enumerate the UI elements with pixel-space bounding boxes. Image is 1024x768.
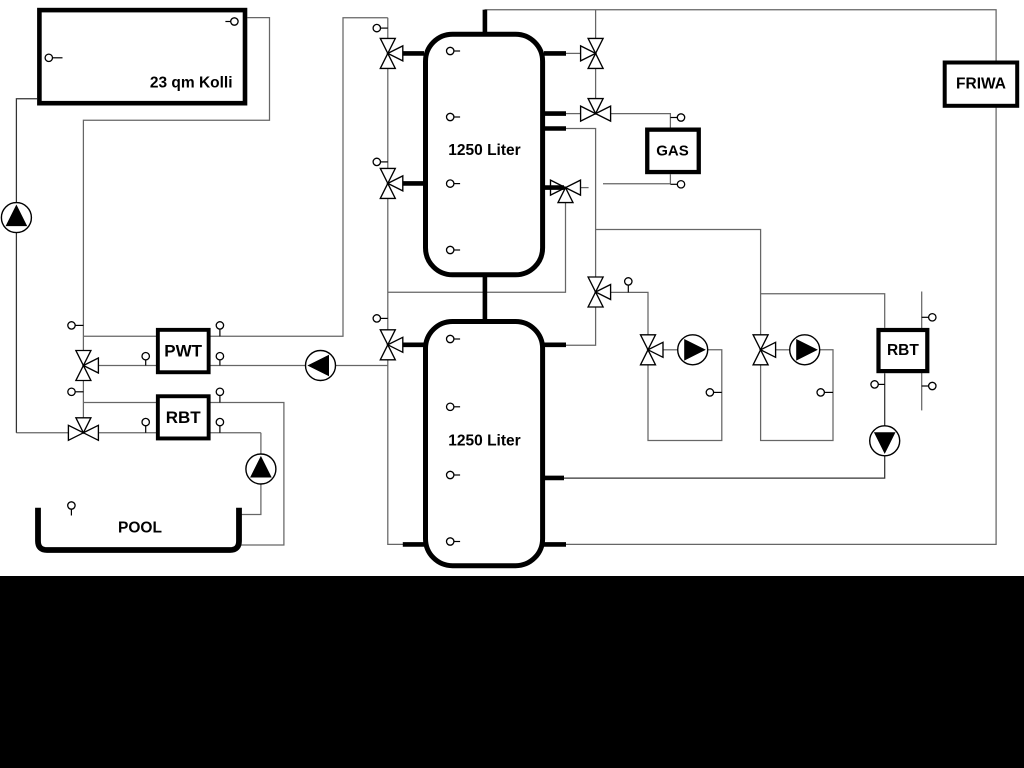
svg-text:GAS: GAS	[656, 142, 689, 159]
svg-text:RBT: RBT	[887, 342, 919, 359]
svg-text:PWT: PWT	[164, 342, 202, 361]
svg-text:FRIWA: FRIWA	[956, 76, 1006, 93]
svg-text:POOL: POOL	[118, 520, 162, 537]
svg-text:RBT: RBT	[166, 408, 202, 427]
svg-text:1250 Liter: 1250 Liter	[448, 433, 520, 450]
svg-text:1250 Liter: 1250 Liter	[448, 142, 520, 159]
svg-text:23 qm Kolli: 23 qm Kolli	[150, 75, 233, 92]
